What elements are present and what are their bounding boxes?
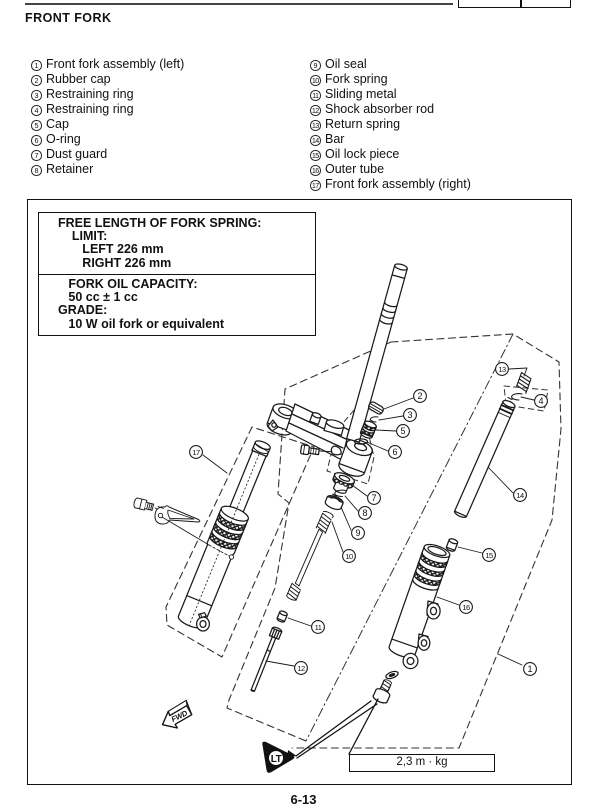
svg-text:10: 10 — [345, 552, 353, 561]
svg-text:11: 11 — [315, 623, 322, 632]
svg-text:1: 1 — [527, 664, 532, 674]
svg-text:13: 13 — [498, 365, 506, 374]
svg-text:17: 17 — [192, 448, 200, 457]
svg-text:3: 3 — [407, 410, 412, 420]
svg-text:14: 14 — [516, 491, 524, 500]
svg-text:15: 15 — [485, 551, 493, 560]
svg-text:16: 16 — [462, 603, 470, 612]
svg-text:6: 6 — [392, 447, 397, 457]
svg-text:LT: LT — [271, 754, 282, 765]
svg-text:4: 4 — [538, 396, 543, 406]
svg-text:9: 9 — [355, 528, 360, 538]
svg-text:7: 7 — [371, 493, 376, 503]
svg-text:12: 12 — [297, 664, 305, 673]
svg-text:8: 8 — [362, 508, 367, 518]
svg-text:2: 2 — [417, 391, 422, 401]
svg-text:5: 5 — [400, 426, 405, 436]
